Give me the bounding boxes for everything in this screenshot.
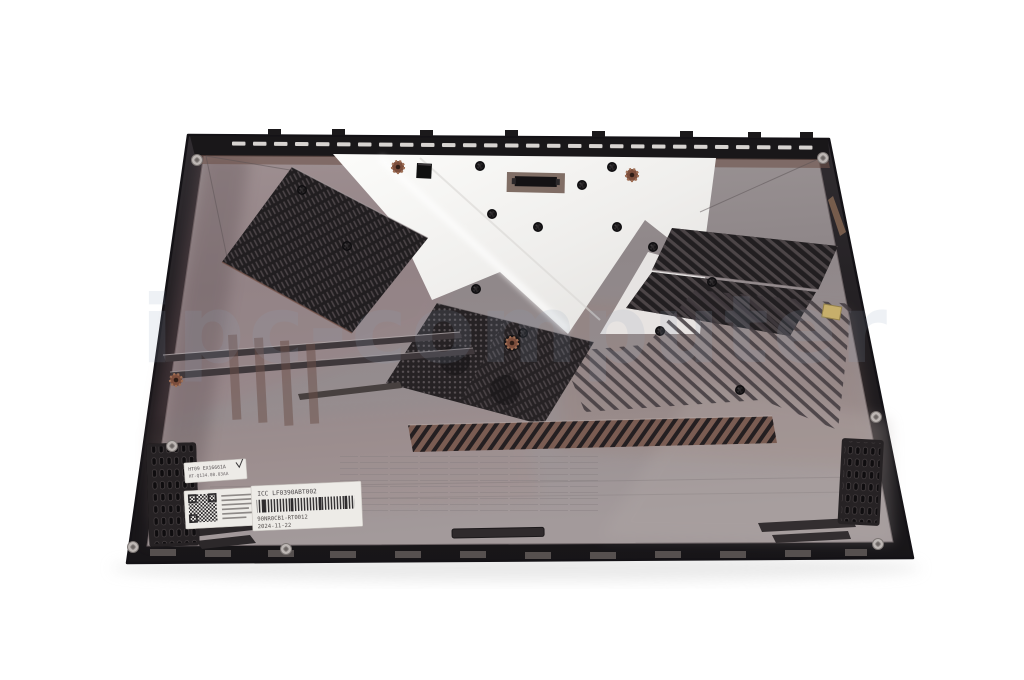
qr-code-icon: [188, 493, 217, 522]
screw-hole-icon: [167, 441, 178, 452]
laptop-bottom-case-photo: HT09 EX16661A HT-Q134.08.03AA ICC LF0390…: [0, 0, 1024, 680]
standoff-icon: [626, 169, 638, 181]
screw-icon: [533, 222, 543, 232]
screw-icon: [487, 209, 497, 219]
screw-hole-icon: [871, 412, 882, 423]
screw-icon: [297, 185, 307, 195]
screw-icon: [607, 162, 617, 172]
screw-hole-icon: [128, 542, 139, 553]
screw-hole-icon: [873, 539, 884, 550]
product-photo: HT09 EX16661A HT-Q134.08.03AA ICC LF0390…: [0, 0, 1024, 680]
screw-icon: [475, 161, 485, 171]
screw-hole-icon: [281, 544, 292, 555]
spec-label: HT09 EX16661A HT-Q134.08.03AA: [184, 459, 247, 483]
speaker-grille-right: [837, 438, 883, 526]
front-slot: [452, 527, 544, 538]
screw-icon: [735, 385, 745, 395]
watermark: ipc-computer: [141, 276, 891, 385]
screw-hole-icon: [818, 153, 829, 164]
screw-icon: [577, 180, 587, 190]
standoff-icon: [392, 161, 404, 173]
screw-hole-icon: [192, 155, 203, 166]
part-label: ICC LF0390ABT002 90NR0CB1-RT0012 2024-11…: [251, 481, 363, 531]
screw-icon: [342, 241, 352, 251]
screw-icon: [648, 242, 658, 252]
connector-plate: [507, 172, 565, 193]
screw-icon: [612, 222, 622, 232]
